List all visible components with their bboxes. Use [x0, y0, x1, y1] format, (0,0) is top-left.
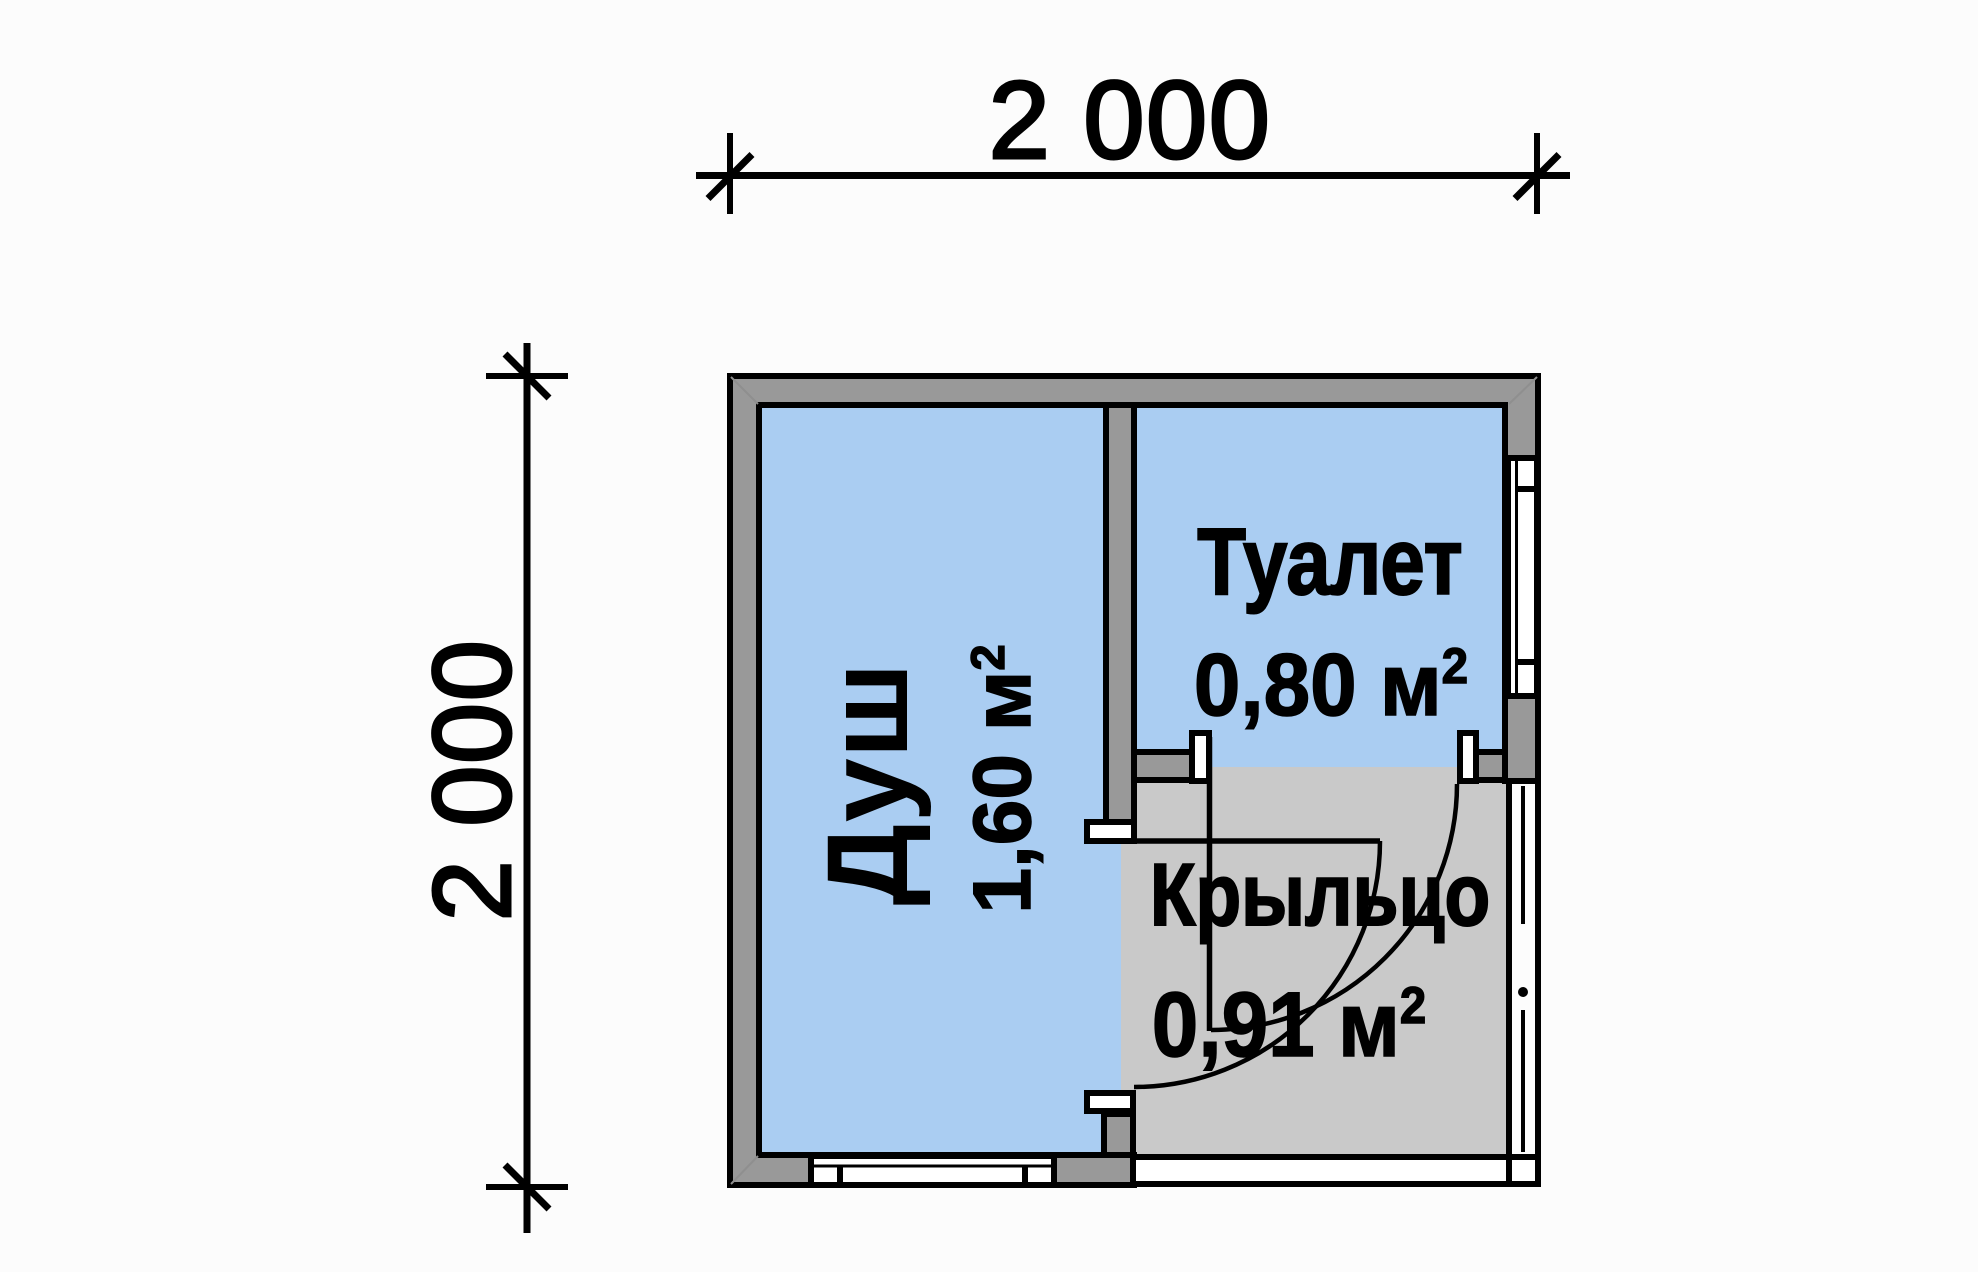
svg-text:2 000: 2 000: [411, 639, 534, 922]
svg-text:Крыльцо: Крыльцо: [1150, 846, 1490, 944]
svg-text:0,91 м2: 0,91 м2: [1152, 972, 1426, 1076]
svg-text:2 000: 2 000: [989, 59, 1272, 182]
svg-text:Туалет: Туалет: [1197, 508, 1462, 614]
svg-text:Душ: Душ: [804, 662, 932, 905]
svg-text:1,60 м2: 1,60 м2: [957, 644, 1048, 913]
svg-text:0,80 м2: 0,80 м2: [1194, 636, 1468, 734]
